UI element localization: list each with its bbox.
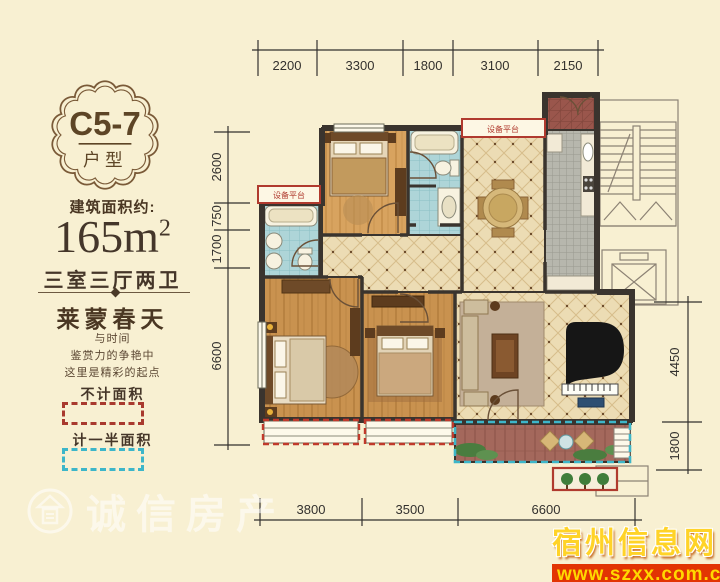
legend-half-area-swatch	[62, 448, 144, 471]
equipment-platform-top-label: 设备平台	[487, 124, 519, 134]
svg-text:6600: 6600	[532, 502, 561, 517]
svg-text:3500: 3500	[396, 502, 425, 517]
dim-bottom-labels: 3800 3500 6600	[297, 502, 561, 517]
svg-text:2200: 2200	[273, 58, 302, 73]
dimension-right: 4450 1800	[654, 296, 702, 474]
equipment-platform-top: 设备平台	[462, 119, 545, 137]
badge-title: C5-7	[69, 105, 141, 142]
basin-left-2-icon	[266, 253, 282, 269]
legend-no-area-swatch	[62, 402, 144, 425]
slogan-line-1: 与时间	[0, 330, 225, 346]
equipment-platform-left-label: 设备平台	[273, 190, 305, 200]
svg-text:3800: 3800	[297, 502, 326, 517]
svg-text:3100: 3100	[481, 58, 510, 73]
slogan-line-3: 这里是精彩的起点	[0, 364, 225, 380]
divider-line	[38, 292, 190, 293]
site-watermark: 宿州信息网 www.szxx.com.cn	[552, 518, 720, 582]
dim-top-labels: 2200 3300 1800 3100 2150	[273, 58, 583, 73]
equipment-platform-left: 设备平台	[258, 186, 320, 203]
ac-platform-icon	[614, 428, 630, 458]
svg-text:1800: 1800	[414, 58, 443, 73]
agency-watermark-text: 诚信房产	[86, 482, 286, 540]
flower-box	[553, 468, 617, 490]
site-url-banner: www.szxx.com.cn	[552, 564, 720, 582]
dim-right-labels: 4450 1800	[667, 348, 682, 461]
toilet-top-icon	[435, 160, 459, 176]
svg-text:3300: 3300	[346, 58, 375, 73]
legend-half-area-label: 计一半面积	[0, 430, 225, 450]
floorplan-page: 设备平台 设备平台	[0, 0, 720, 582]
agency-logo-icon	[26, 487, 74, 535]
basin-left-1-icon	[266, 233, 282, 249]
bay-windows	[263, 420, 453, 444]
unit-badge: C5-7 户型	[50, 80, 160, 190]
area-superscript: 2	[159, 216, 171, 242]
basin-top-icon	[438, 188, 460, 226]
badge-seal-icon: C5-7 户型	[50, 80, 160, 190]
area-value: 165m2	[0, 210, 225, 263]
project-name: 莱蒙春天	[0, 300, 225, 334]
bathtub-top-icon	[411, 131, 458, 154]
agency-watermark: 诚信房产	[26, 482, 286, 540]
sofa-set-icon	[460, 300, 544, 406]
svg-text:4450: 4450	[667, 348, 682, 377]
svg-text:2150: 2150	[554, 58, 583, 73]
slogan-line-2: 鉴赏力的争艳中	[0, 347, 225, 363]
legend-no-area-label: 不计面积	[0, 384, 225, 404]
badge-subtitle: 户型	[83, 150, 127, 170]
site-name-text: 宿州信息网	[552, 518, 720, 562]
svg-text:1800: 1800	[667, 432, 682, 461]
bathtub-left-icon	[265, 206, 317, 226]
grand-piano-icon	[562, 322, 624, 407]
dimension-top: 2200 3300 1800 3100 2150	[252, 40, 604, 76]
